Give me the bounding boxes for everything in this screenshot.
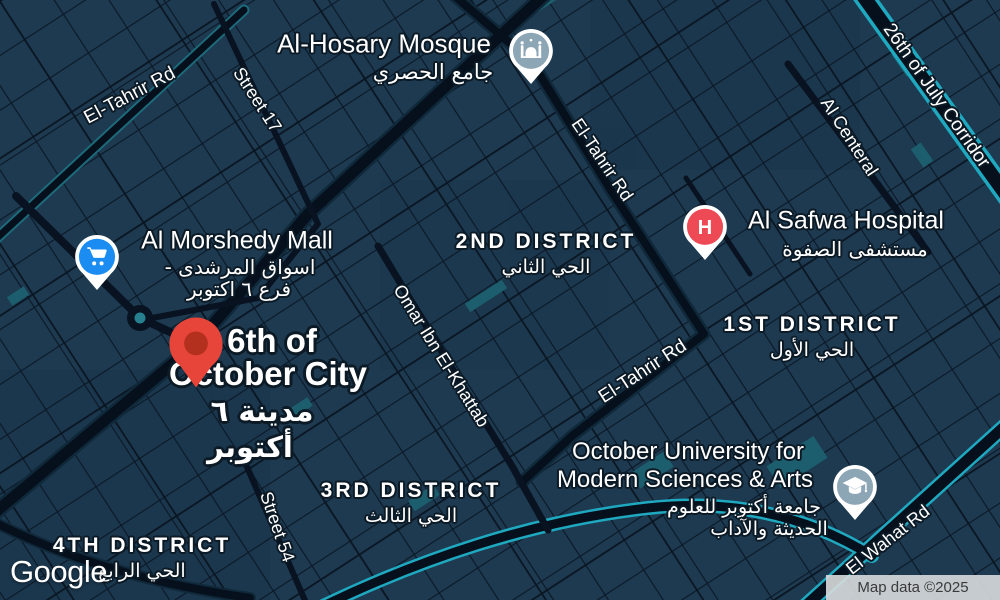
district-2nd-en: 2ND DISTRICT bbox=[456, 230, 637, 254]
red-map-pin[interactable] bbox=[168, 316, 224, 389]
hospital-h-letter: H bbox=[698, 217, 712, 239]
poi-label-al-morshedy-mall-ar1[interactable]: اسواق المرشدى - bbox=[165, 255, 316, 279]
poi-label-al-morshedy-mall[interactable]: Al Morshedy Mall bbox=[141, 227, 333, 256]
district-1st-ar: الحي الأول bbox=[723, 339, 900, 361]
poi-label-al-hosary-mosque-ar[interactable]: جامع الحصري bbox=[373, 60, 494, 84]
poi-label-university-line1[interactable]: October University for bbox=[572, 438, 804, 466]
mall-pin[interactable] bbox=[74, 234, 120, 291]
poi-label-university-line2[interactable]: Modern Sciences & Arts bbox=[557, 466, 813, 494]
roundabout bbox=[127, 305, 153, 331]
poi-label-al-safwa-hospital[interactable]: Al Safwa Hospital bbox=[748, 207, 944, 236]
district-2nd-ar: الحي الثاني bbox=[456, 256, 637, 278]
map-attribution: Map data ©2025 bbox=[826, 575, 1000, 600]
city-label-ar1: مدينة ٦ bbox=[211, 394, 314, 428]
google-logo[interactable]: Google bbox=[10, 554, 107, 590]
university-pin[interactable] bbox=[832, 464, 878, 521]
hospital-pin[interactable]: H bbox=[682, 204, 728, 261]
mosque-icon bbox=[508, 28, 554, 85]
poi-label-al-morshedy-mall-ar2[interactable]: فرع ٦ اكتوبر bbox=[187, 277, 291, 301]
map-pin-icon bbox=[168, 316, 224, 389]
city-label-ar2: أكتوبر bbox=[207, 430, 293, 464]
district-label-3rd: 3RD DISTRICT الحي الثالث bbox=[321, 479, 502, 527]
mosque-pin[interactable] bbox=[508, 28, 554, 85]
hospital-icon: H bbox=[682, 204, 728, 261]
poi-label-university-ar1[interactable]: جامعة أكتوبر للعلوم bbox=[667, 496, 821, 518]
map-viewport[interactable]: El-Tahrir Rd Street 17 26th of July Corr… bbox=[0, 0, 1000, 600]
district-3rd-ar: الحي الثالث bbox=[321, 505, 502, 527]
district-label-1st: 1ST DISTRICT الحي الأول bbox=[723, 313, 900, 361]
poi-label-al-hosary-mosque[interactable]: Al-Hosary Mosque bbox=[277, 29, 491, 60]
poi-label-university-ar2[interactable]: الحديثة والآداب bbox=[710, 518, 827, 540]
graduation-cap-icon bbox=[832, 464, 878, 521]
district-3rd-en: 3RD DISTRICT bbox=[321, 479, 502, 503]
shopping-cart-icon bbox=[74, 234, 120, 291]
poi-label-al-safwa-hospital-ar[interactable]: مستشفى الصفوة bbox=[782, 237, 928, 261]
district-label-2nd: 2ND DISTRICT الحي الثاني bbox=[456, 230, 637, 278]
district-1st-en: 1ST DISTRICT bbox=[723, 313, 900, 337]
